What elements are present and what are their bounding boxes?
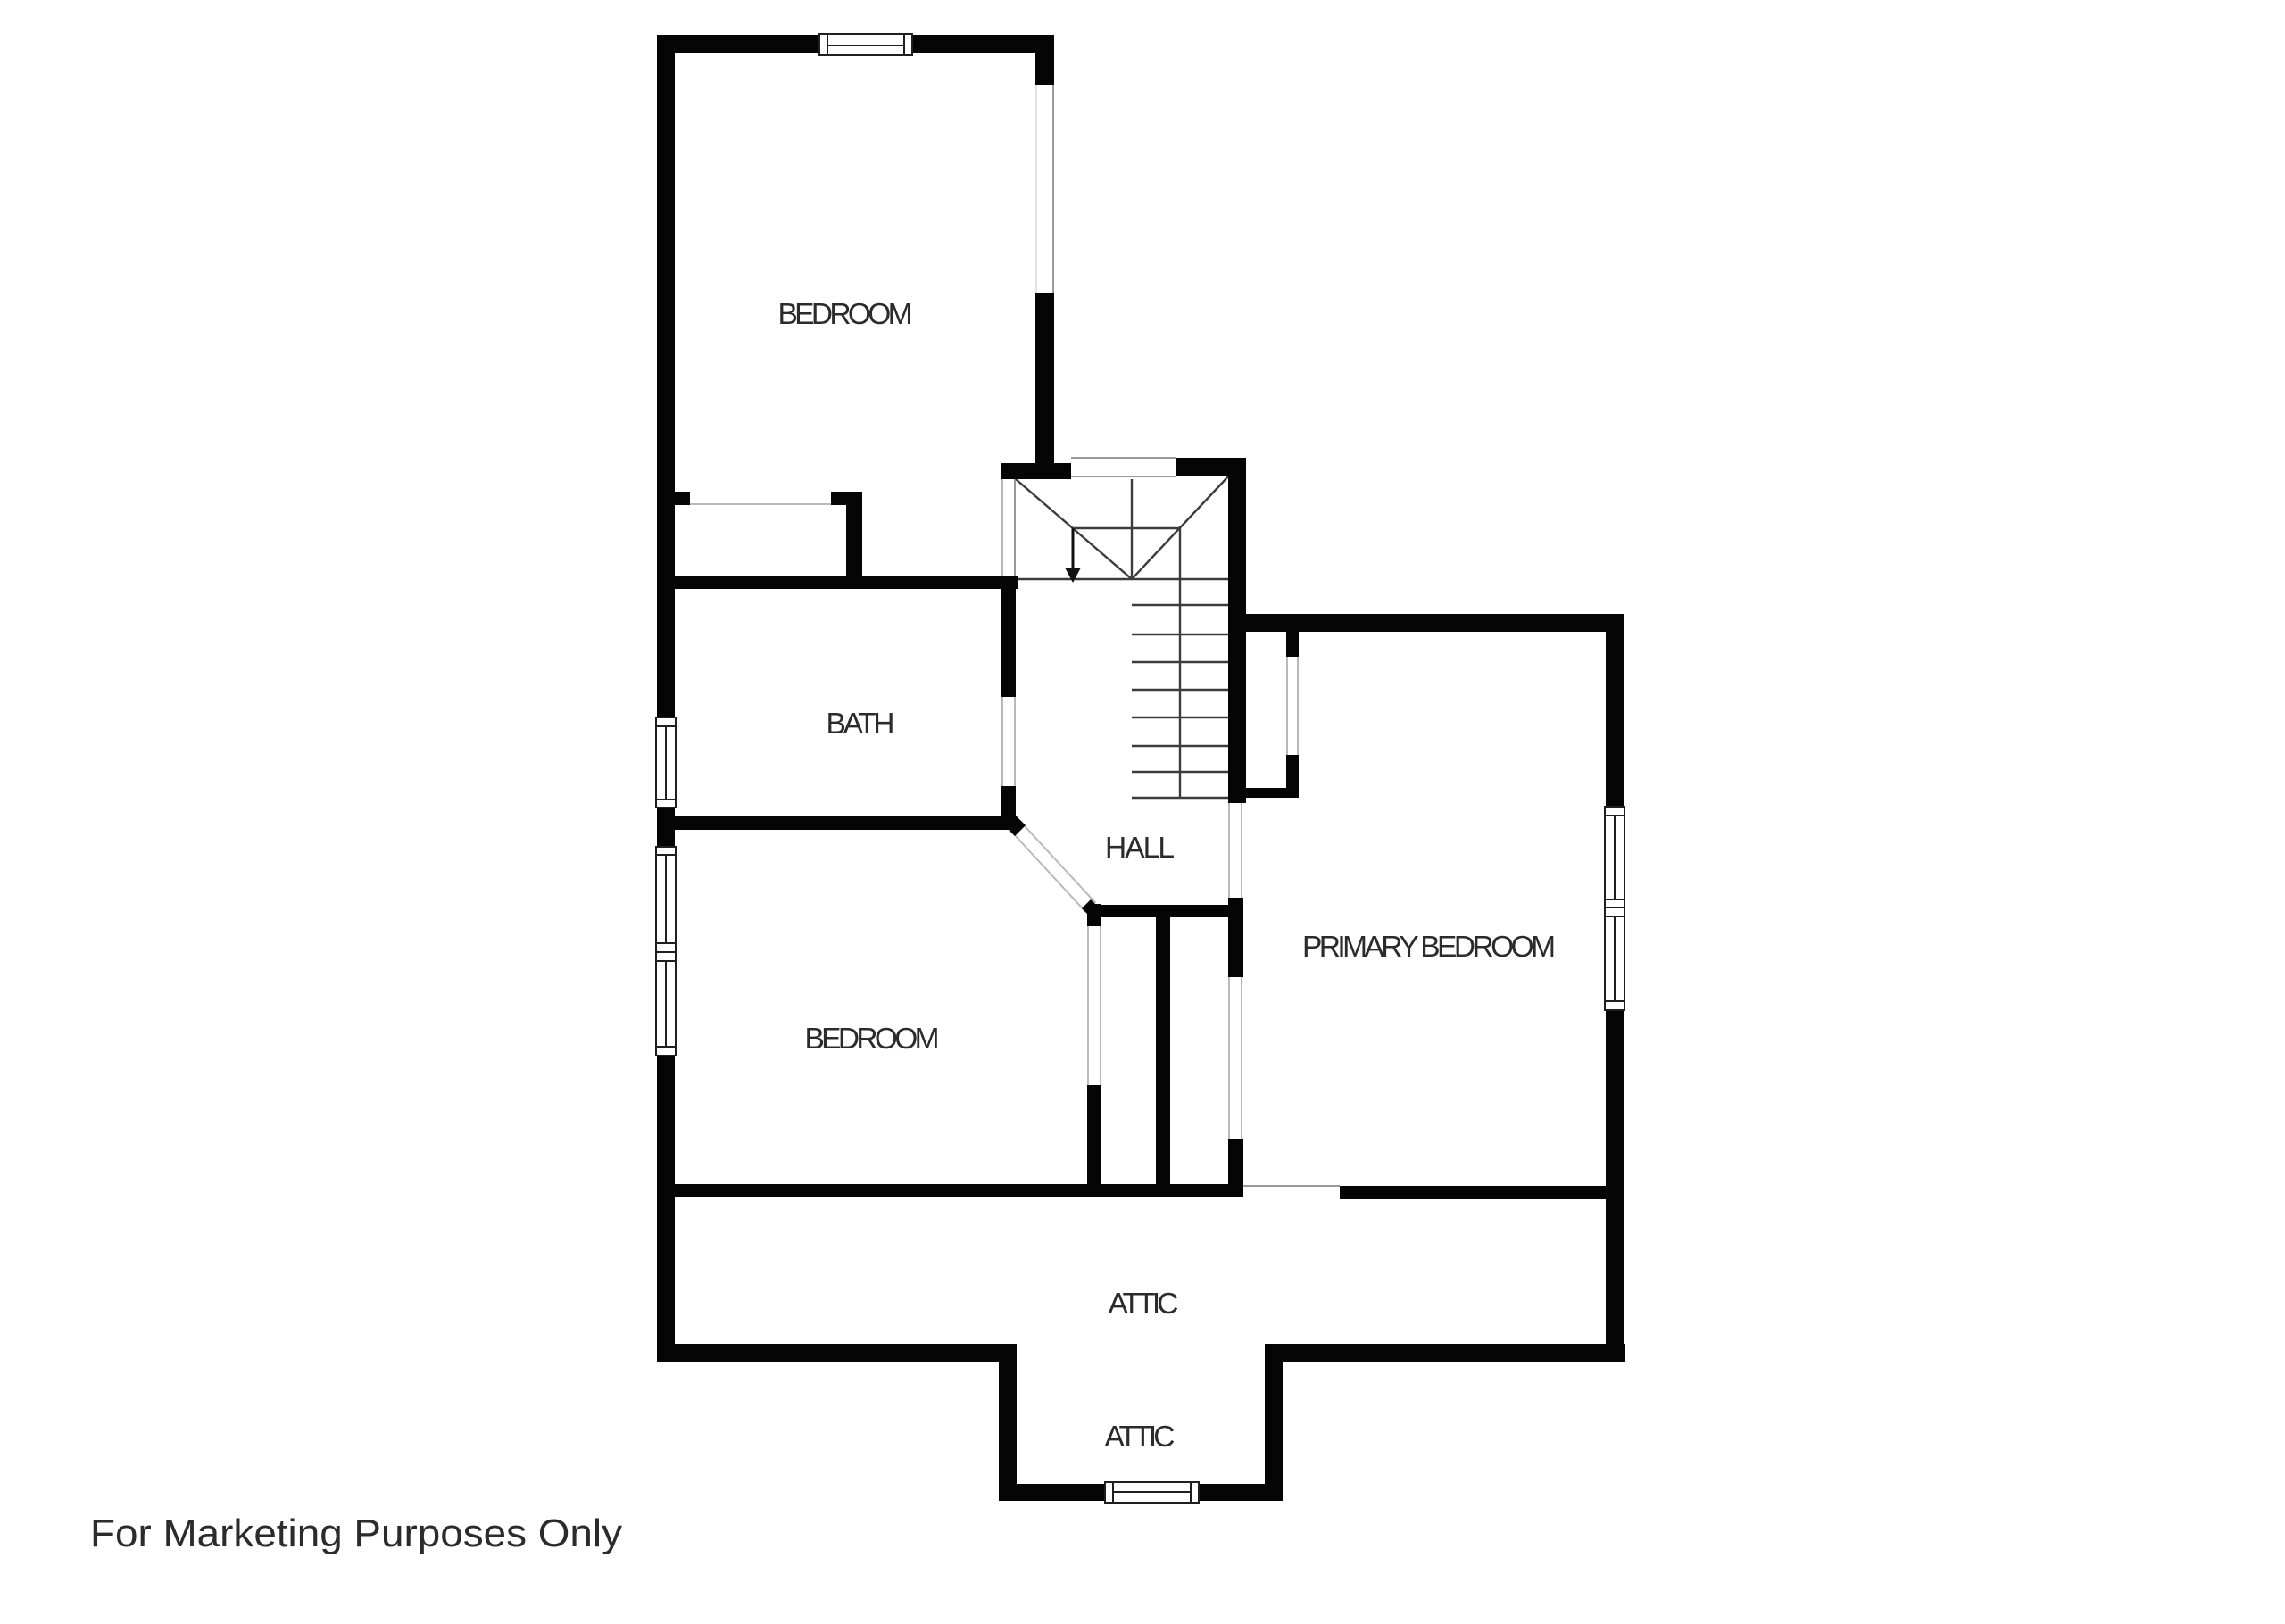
svg-text:For Marketing Purposes Only: For Marketing Purposes Only — [90, 1512, 622, 1555]
svg-text:BEDROOM: BEDROOM — [805, 1023, 940, 1056]
svg-text:HALL: HALL — [1105, 832, 1175, 865]
svg-text:ATTIC: ATTIC — [1109, 1288, 1179, 1321]
svg-text:BEDROOM: BEDROOM — [778, 298, 913, 331]
svg-text:PRIMARY BEDROOM: PRIMARY BEDROOM — [1302, 931, 1556, 964]
svg-text:ATTIC: ATTIC — [1105, 1421, 1176, 1454]
svg-text:BATH: BATH — [827, 708, 895, 741]
